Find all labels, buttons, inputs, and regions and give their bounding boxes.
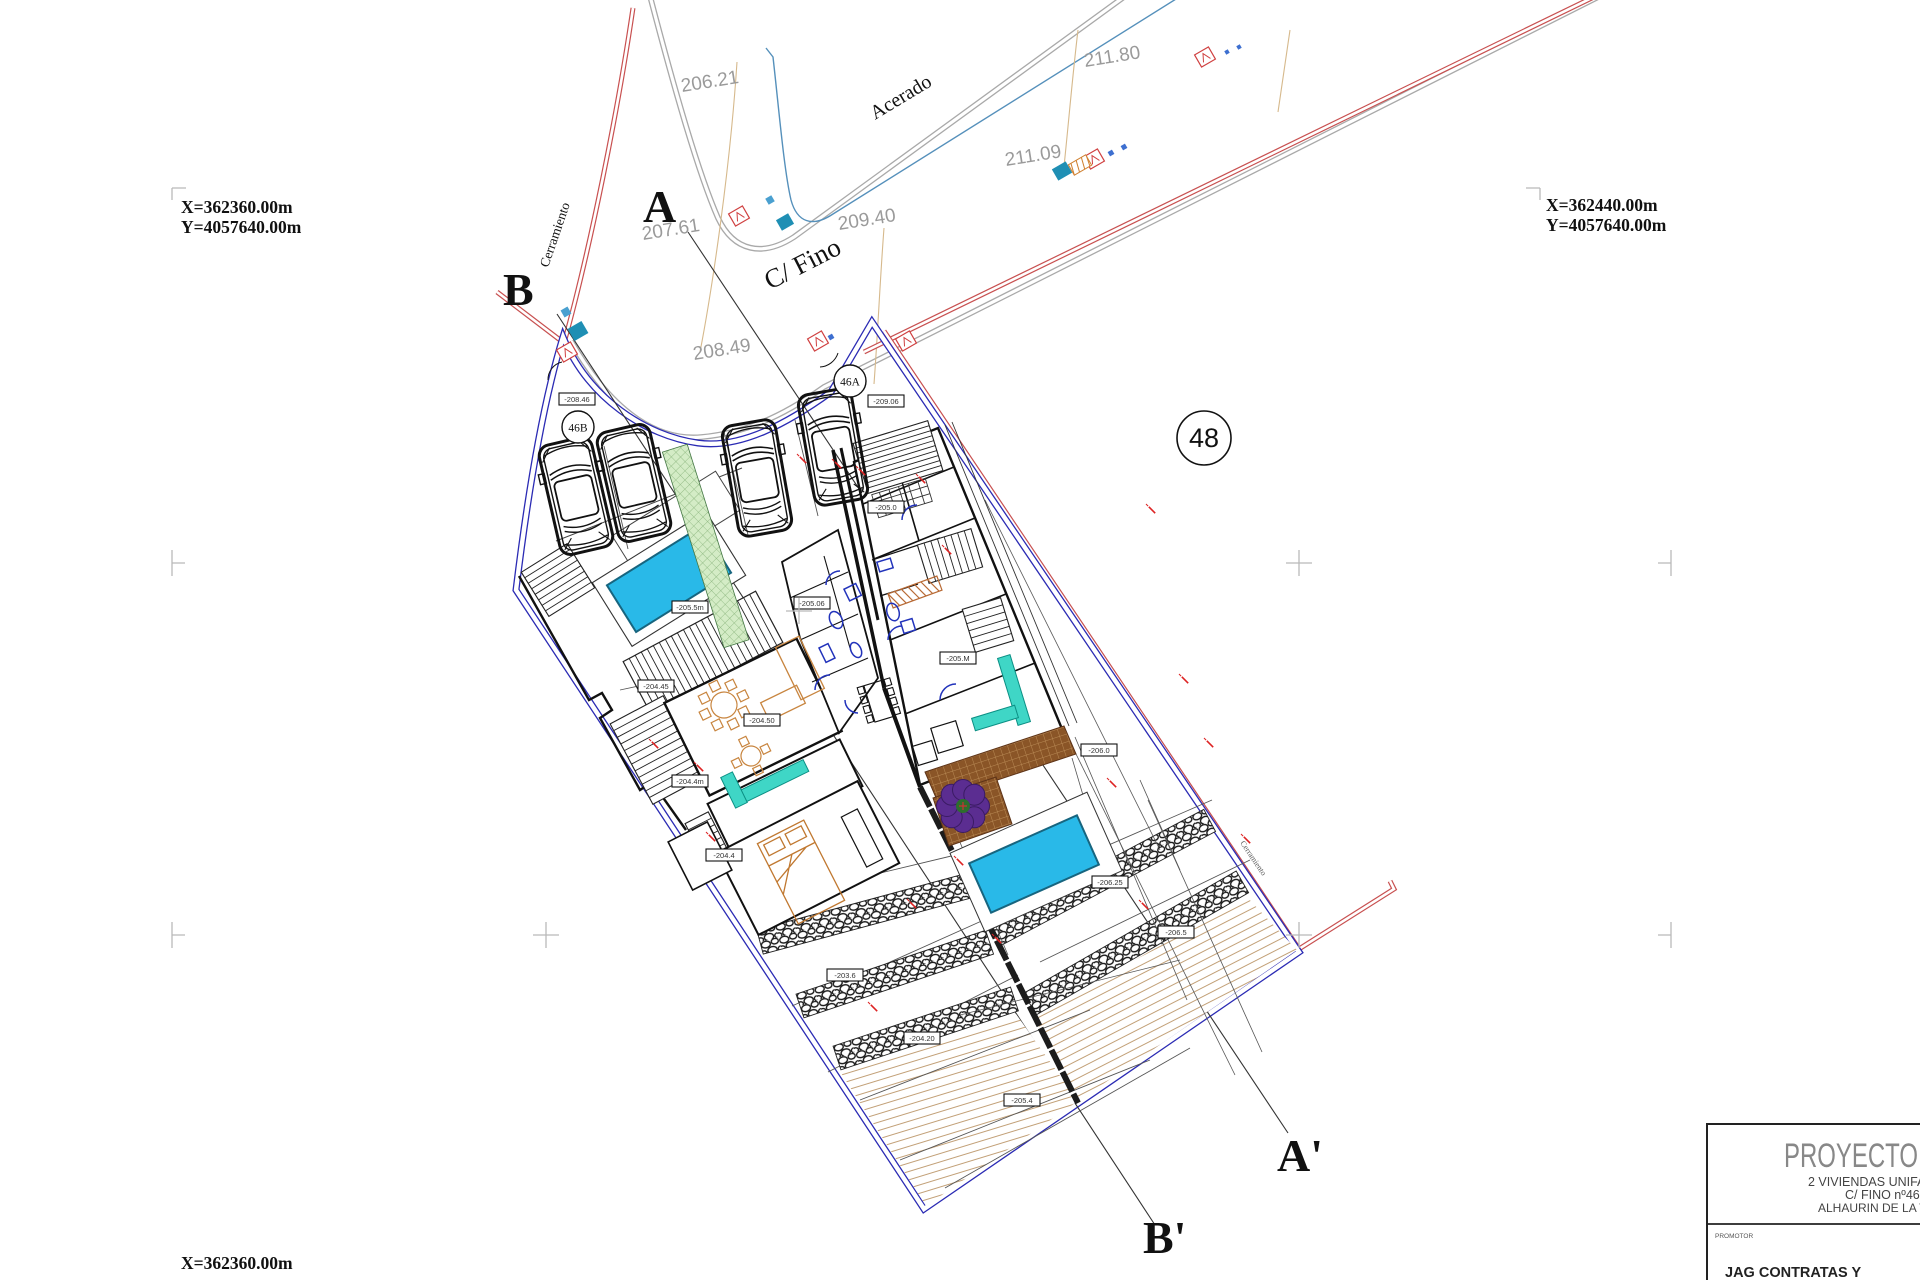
svg-text:X=362360.00m: X=362360.00m [181, 1253, 293, 1273]
svg-text:-204.50: -204.50 [749, 716, 774, 725]
svg-text:-206.0: -206.0 [1088, 746, 1109, 755]
svg-text:-205.M: -205.M [946, 654, 969, 663]
svg-text:Y=4057640.00m: Y=4057640.00m [1546, 215, 1667, 235]
svg-text:X=362440.00m: X=362440.00m [1546, 195, 1658, 215]
svg-text:-206.25: -206.25 [1097, 878, 1122, 887]
svg-text:-204.20: -204.20 [909, 1034, 934, 1043]
svg-text:-208.46: -208.46 [564, 395, 589, 404]
svg-text:B: B [503, 264, 534, 315]
svg-text:2 VIVIENDAS UNIFAMILIARES: 2 VIVIENDAS UNIFAMILIARES [1808, 1175, 1920, 1189]
svg-text:46A: 46A [840, 377, 861, 389]
svg-text:PROMOTOR: PROMOTOR [1715, 1233, 1753, 1240]
svg-text:48: 48 [1189, 423, 1219, 453]
svg-text:-204.4: -204.4 [713, 851, 734, 860]
svg-text:-205.4: -205.4 [1011, 1096, 1032, 1105]
svg-text:-206.5: -206.5 [1165, 928, 1186, 937]
svg-text:PROYECTO: PROYECTO [1784, 1137, 1918, 1175]
svg-text:Y=4057640.00m: Y=4057640.00m [181, 217, 302, 237]
svg-text:X=362360.00m: X=362360.00m [181, 197, 293, 217]
svg-text:-205.0: -205.0 [875, 503, 896, 512]
svg-text:JAG CONTRATAS Y: JAG CONTRATAS Y [1725, 1265, 1861, 1280]
svg-text:A': A' [1277, 1130, 1323, 1181]
svg-text:ALHAURIN DE LA TORRE: ALHAURIN DE LA TORRE [1818, 1201, 1920, 1215]
svg-text:-205.06: -205.06 [799, 599, 824, 608]
svg-text:-205.5m: -205.5m [676, 603, 704, 612]
svg-text:B': B' [1143, 1212, 1186, 1263]
svg-text:46B: 46B [568, 423, 588, 435]
svg-text:-209.06: -209.06 [873, 397, 898, 406]
svg-text:-203.6: -203.6 [834, 971, 855, 980]
svg-text:-204.45: -204.45 [643, 682, 668, 691]
svg-text:C/ FINO nº46 A y B: C/ FINO nº46 A y B [1845, 1188, 1920, 1202]
svg-text:-204.4m: -204.4m [676, 777, 704, 786]
